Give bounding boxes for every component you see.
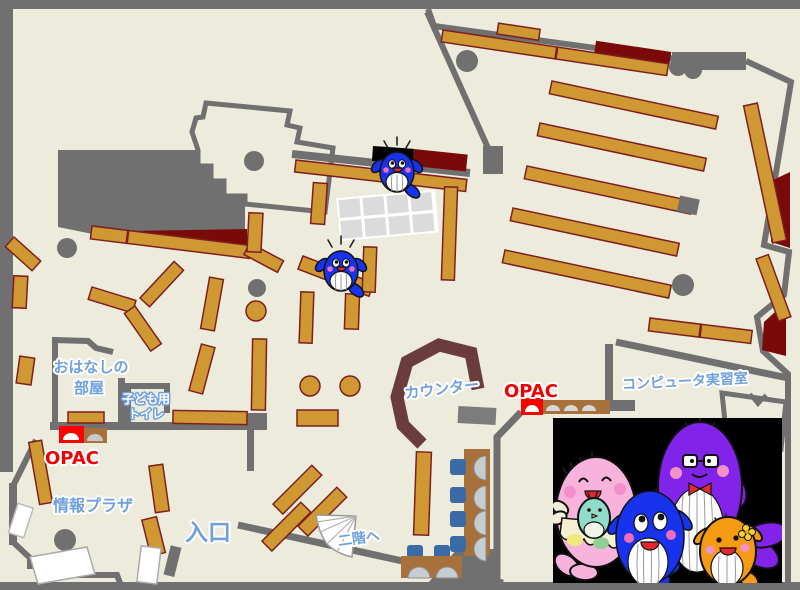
bookshelf: [441, 187, 457, 280]
wall-story-left: [52, 337, 58, 425]
pupil: [639, 516, 646, 523]
eye: [598, 508, 602, 512]
pillar: [54, 529, 76, 551]
baby-bib: [584, 522, 604, 538]
round-table: [340, 376, 360, 396]
bookshelf: [16, 356, 35, 385]
chair: [450, 536, 466, 552]
chair: [450, 511, 466, 527]
pillar: [244, 151, 264, 171]
bookshelf: [247, 213, 263, 253]
pillar: [669, 58, 687, 76]
cheek: [666, 530, 676, 540]
cheek: [624, 533, 634, 543]
eye: [690, 459, 694, 463]
skirt-patch-yellow: [567, 534, 583, 546]
cheek: [717, 465, 729, 477]
bookshelf: [173, 410, 247, 424]
eye: [733, 535, 738, 540]
wall-toilet-top: [125, 383, 170, 389]
bookshelf: [311, 183, 328, 225]
label-storytelling-room-2: 部屋: [74, 379, 104, 397]
counter-desk: [458, 406, 497, 425]
wall-top: [0, 0, 800, 9]
label-opac-right: OPAC: [504, 381, 558, 402]
label-storytelling-room: おはなしの: [53, 358, 128, 376]
cheek: [614, 483, 626, 495]
bookshelf: [344, 294, 359, 329]
chair: [450, 459, 466, 475]
wall-corridor-left: [247, 429, 254, 471]
wall-opac-bar: [607, 400, 635, 411]
bookshelf: [68, 412, 104, 423]
opac-station-left: [59, 426, 107, 443]
study-table-grid: [336, 190, 438, 241]
cheek: [564, 486, 576, 498]
table-rect: [297, 410, 338, 426]
pillar: [672, 274, 694, 296]
pillar: [248, 279, 266, 297]
label-opac-left: OPAC: [45, 448, 99, 469]
bookshelf: [12, 276, 28, 309]
round-table: [300, 376, 320, 396]
label-entrance: 入口: [185, 520, 231, 546]
mascot-picture-panel: [547, 418, 790, 590]
pillar: [456, 50, 478, 72]
wall-computer-left: [605, 344, 613, 404]
pillar: [684, 61, 702, 79]
wall-bottom: [0, 582, 800, 590]
eye: [707, 459, 711, 463]
bookshelf: [414, 452, 432, 535]
pillar: [57, 238, 77, 258]
label-kids-toilet-2: トイレ: [128, 407, 164, 421]
label-info-plaza: 情報プラザ: [53, 496, 133, 515]
wall-block-center: [483, 146, 503, 174]
bookshelf: [299, 292, 314, 343]
wall-block: [247, 413, 267, 430]
bookshelf: [251, 339, 266, 410]
floor-map-canvas: おはなしの 部屋 子ども用 トイレ OPAC 情報プラザ 入口 二階へ カウンタ…: [0, 0, 800, 590]
door-panel: [137, 546, 161, 584]
cheek: [741, 544, 750, 553]
eye: [587, 508, 591, 512]
eye: [716, 537, 721, 542]
round-table: [246, 301, 266, 321]
library-floor-map: おはなしの 部屋 子ども用 トイレ OPAC 情報プラザ 入口 二階へ カウンタ…: [0, 0, 800, 590]
label-kids-toilet: 子ども用: [122, 392, 170, 406]
cheek: [706, 546, 715, 555]
pupil: [658, 514, 665, 521]
cheek: [670, 467, 682, 479]
chair: [450, 487, 466, 503]
